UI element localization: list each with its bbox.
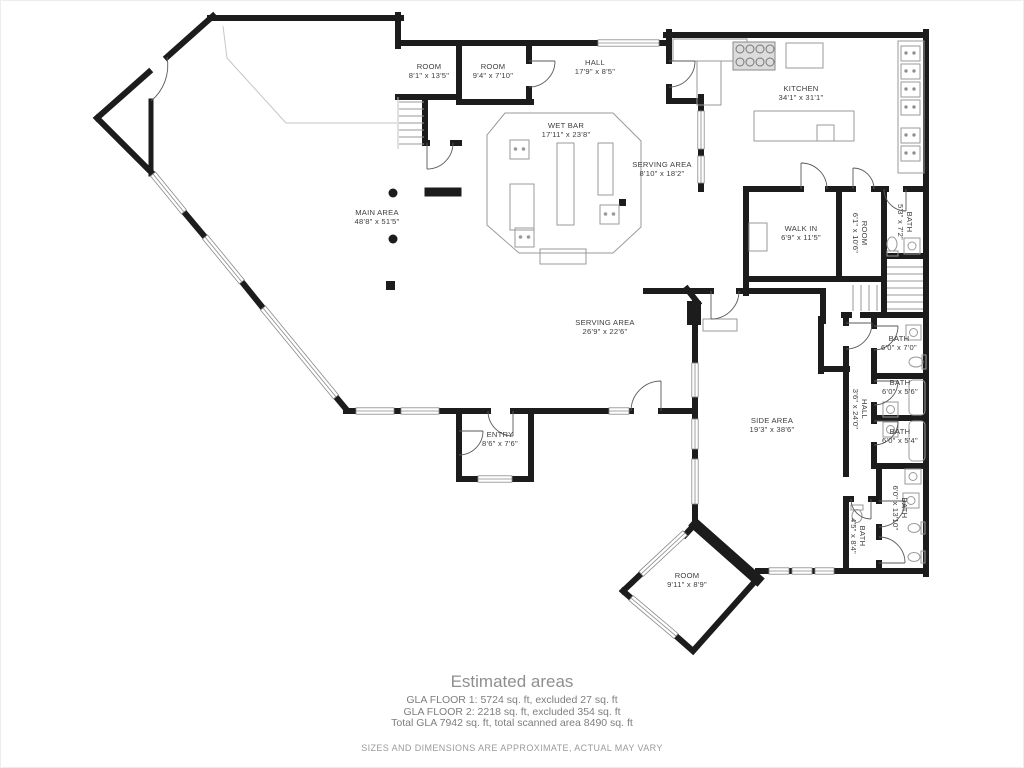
sink-icon [883, 402, 898, 417]
room-label-wet-bar: WET BAR17'11" x 23'8" [542, 121, 591, 139]
door-arc [879, 537, 905, 563]
walk-in-shelf [749, 223, 767, 251]
toilet-icon [909, 357, 923, 367]
room-label-room-2: ROOM9'4" x 7'10" [473, 62, 513, 80]
ceiling-line [223, 26, 397, 123]
gla-total-line: Total GLA 7942 sq. ft, total scanned are… [1, 718, 1023, 730]
room-label-room-1: ROOM8'1" x 13'5" [409, 62, 449, 80]
wall-pillar [687, 301, 701, 325]
room-label-bath-1: BATH5'3" x 7'2" [896, 204, 914, 240]
room-label-bath-4: BATH6'0" x 5'4" [882, 427, 918, 445]
walls [97, 15, 926, 651]
stairs-top-left [398, 97, 424, 149]
room-label-bath-5: BATH6'0" x 13'10" [891, 486, 909, 531]
toilet-icon [908, 524, 920, 533]
room-label-side-area: SIDE AREA19'3" x 38'6" [750, 416, 795, 434]
door-arc [801, 163, 827, 189]
room-label-kitchen: KITCHEN34'1" x 31'1" [779, 84, 824, 102]
door-arc [846, 323, 872, 349]
kitchen-island [754, 111, 854, 141]
column-dot [389, 235, 398, 244]
room-label-room-3: ROOM6'1" x 10'6" [851, 213, 869, 253]
windows [151, 40, 834, 639]
room-label-room-4: ROOM9'11" x 8'9" [667, 571, 707, 589]
sink-icon [904, 238, 920, 254]
door-arc [853, 168, 874, 189]
room-label-serving-area-1: SERVING AREA8'10" x 18'2" [632, 160, 692, 178]
toilet-icon [887, 237, 897, 251]
room-label-main-area: MAIN AREA48'8" x 51'5" [355, 208, 400, 226]
kitchen-sink-counter [898, 41, 924, 173]
sink-icon [905, 469, 921, 484]
floor-plan-drawing: ROOM8'1" x 13'5"ROOM9'4" x 7'10"HALL17'9… [1, 1, 1024, 768]
stove-icon [733, 42, 775, 70]
estimated-areas-title: Estimated areas [1, 672, 1023, 692]
kitchen-hood [786, 43, 823, 68]
structural-columns [386, 189, 398, 291]
floor-plan-page: ROOM8'1" x 13'5"ROOM9'4" x 7'10"HALL17'9… [0, 0, 1024, 768]
disclaimer-text: SIZES AND DIMENSIONS ARE APPROXIMATE, AC… [1, 743, 1023, 753]
door-arc [427, 143, 453, 169]
stairs-right [853, 267, 923, 311]
door-arc [529, 61, 555, 87]
room-label-hall-side: HALL3'6" x 24'0" [851, 389, 869, 429]
door-arc [631, 381, 661, 411]
side-area-counter [703, 319, 737, 331]
wall-stub [619, 199, 626, 206]
room-label-bath-2: BATH6'0" x 7'0" [881, 334, 917, 352]
door-arc [711, 291, 739, 319]
door-arc [669, 61, 695, 87]
bathtub-icon [909, 380, 925, 415]
room-label-hall-top: HALL17'9" x 8'5" [575, 58, 615, 76]
room-label-entry: ENTRY8'6" x 7'6" [482, 430, 518, 448]
column-dot [389, 189, 398, 198]
room-label-serving-area-2: SERVING AREA26'9" x 22'6" [575, 318, 635, 336]
estimated-areas-block: Estimated areas GLA FLOOR 1: 5724 sq. ft… [1, 672, 1023, 762]
column-square [386, 281, 395, 290]
room-label-walk-in: WALK IN6'9" x 11'5" [781, 224, 821, 242]
door-arc [151, 57, 168, 101]
toilet-icon [908, 553, 920, 562]
gla-floor1-line: GLA FLOOR 1: 5724 sq. ft, excluded 27 sq… [1, 695, 1023, 707]
door-arc [459, 431, 483, 455]
room-label-bath-6: BATH4'5" x 8'4" [849, 518, 867, 554]
